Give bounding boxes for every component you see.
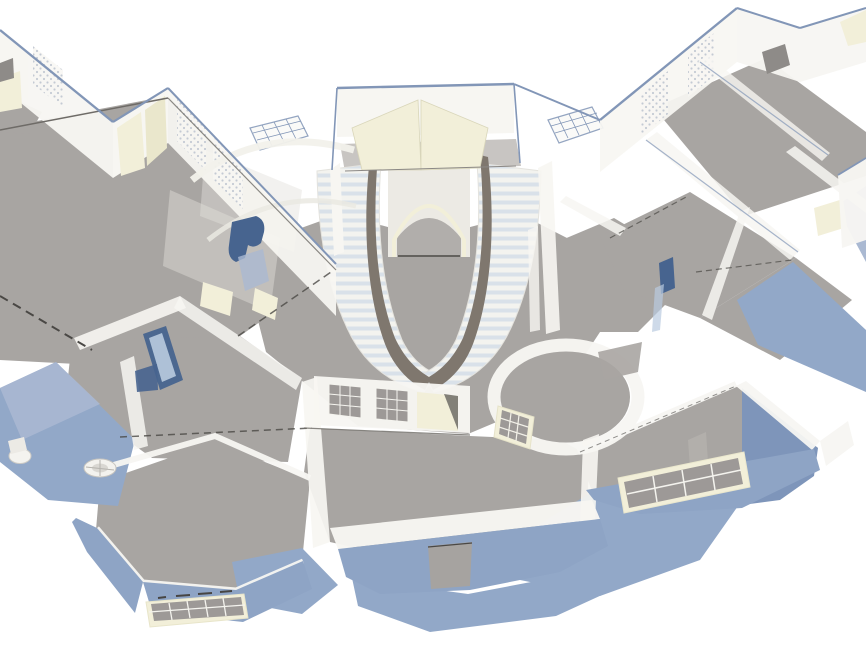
edge-entry-right [514, 84, 600, 120]
skylight-right-base [548, 107, 603, 143]
model-scene [0, 8, 866, 632]
floorplan-canvas[interactable] [0, 0, 866, 668]
family-fireplace-opening [428, 542, 472, 589]
family-window2-panes [376, 388, 408, 422]
family-window1-panes [329, 384, 361, 418]
edge-entry-jamb-left [332, 88, 337, 170]
floor-plan-svg [0, 0, 866, 668]
wall-mid-vert3 [528, 226, 540, 332]
wall-bottomright-box [820, 421, 854, 466]
